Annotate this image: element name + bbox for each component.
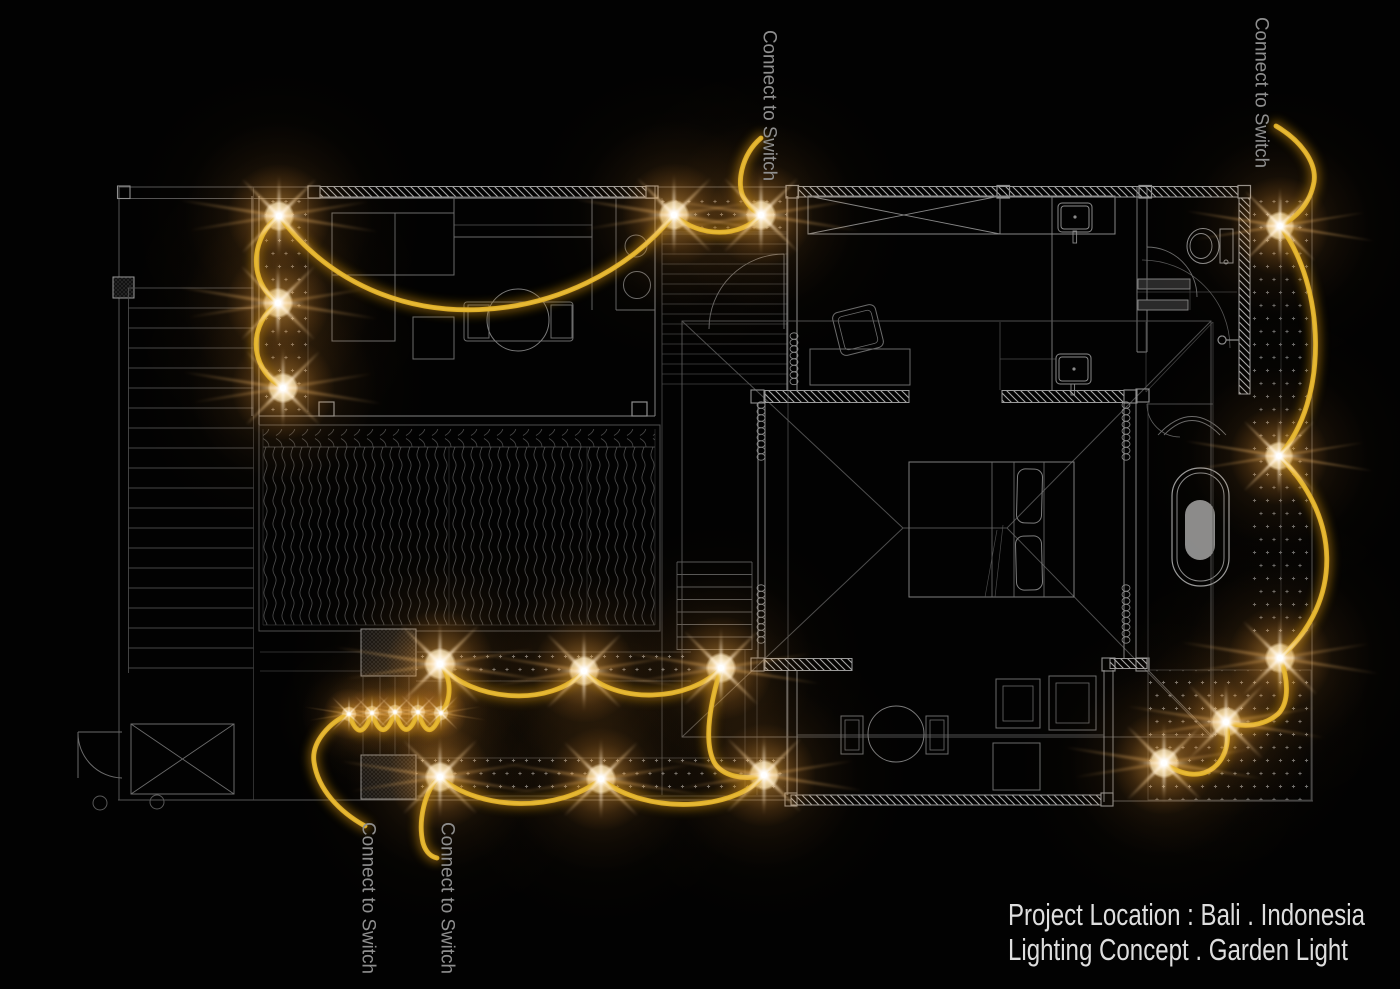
svg-text:Lighting Concept . Garden Ligh: Lighting Concept . Garden Light bbox=[1008, 932, 1348, 967]
svg-text:Connect to Switch: Connect to Switch bbox=[759, 30, 780, 181]
svg-text:Connect to Switch: Connect to Switch bbox=[1251, 17, 1272, 168]
svg-text:Project Location : Bali . Indo: Project Location : Bali . Indonesia bbox=[1008, 897, 1366, 932]
svg-text:Connect to Switch: Connect to Switch bbox=[358, 822, 379, 974]
svg-text:Connect to Switch: Connect to Switch bbox=[437, 822, 458, 974]
